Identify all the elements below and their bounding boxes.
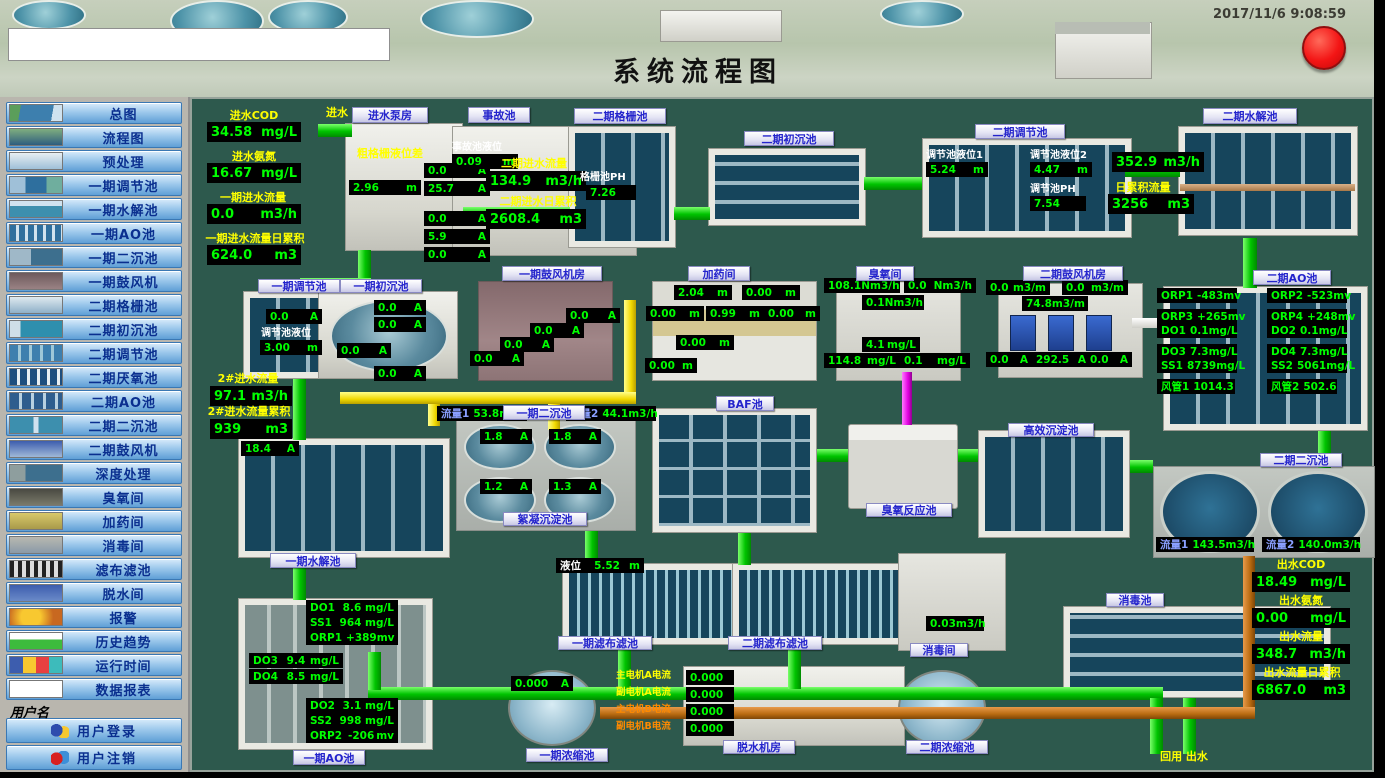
- sidebar-item-15[interactable]: 二期鼓风机: [6, 438, 182, 460]
- thumbnail-icon: [9, 272, 63, 290]
- sidebar-item-label: 一期水解池: [66, 200, 181, 219]
- sidebar-item-11[interactable]: 二期调节池: [6, 342, 182, 364]
- thumbnail-icon: [9, 440, 63, 458]
- user-button-label: 用户登录: [77, 721, 137, 740]
- sidebar-item-label: 加药间: [66, 512, 181, 531]
- datetime-display: 2017/11/6 9:08:59: [1213, 7, 1346, 22]
- sidebar-item-label: 总图: [66, 104, 181, 123]
- thumbnail-icon: [9, 200, 63, 218]
- sidebar-item-2[interactable]: 流程图: [6, 126, 182, 148]
- sidebar-item-9[interactable]: 二期格栅池: [6, 294, 182, 316]
- thumbnail-icon: [9, 632, 63, 650]
- sidebar-nav-list: 总图流程图预处理一期调节池一期水解池一期AO池一期二沉池一期鼓风机二期格栅池二期…: [6, 102, 182, 700]
- sidebar-item-label: 一期调节池: [66, 176, 181, 195]
- sidebar-nav: 总图流程图预处理一期调节池一期水解池一期AO池一期二沉池一期鼓风机二期格栅池二期…: [0, 97, 190, 772]
- sidebar-item-label: 运行时间: [66, 656, 181, 675]
- login-icon: [51, 724, 69, 738]
- header-banner: 系统流程图 2017/11/6 9:08:59: [0, 0, 1374, 98]
- aerial-building-icon: [660, 10, 782, 42]
- thumbnail-icon: [9, 608, 63, 626]
- sidebar-item-label: 二期AO池: [66, 392, 181, 411]
- thumbnail-icon: [9, 656, 63, 674]
- sidebar-item-10[interactable]: 二期初沉池: [6, 318, 182, 340]
- thumbnail-icon: [9, 488, 63, 506]
- sidebar-item-label: 脱水间: [66, 584, 181, 603]
- sidebar-item-label: 一期二沉池: [66, 248, 181, 267]
- sidebar-item-label: 二期厌氧池: [66, 368, 181, 387]
- sidebar-item-label: 深度处理: [66, 464, 181, 483]
- thumbnail-icon: [9, 344, 63, 362]
- sidebar-item-4[interactable]: 一期调节池: [6, 174, 182, 196]
- sidebar-item-label: 一期鼓风机: [66, 272, 181, 291]
- sidebar-item-5[interactable]: 一期水解池: [6, 198, 182, 220]
- thumbnail-icon: [9, 104, 63, 122]
- sidebar-item-3[interactable]: 预处理: [6, 150, 182, 172]
- sidebar-item-1[interactable]: 总图: [6, 102, 182, 124]
- sidebar-user-buttons: 用户登录用户注销退出运行: [6, 718, 182, 778]
- sidebar-item-19[interactable]: 消毒间: [6, 534, 182, 556]
- sidebar-item-21[interactable]: 脱水间: [6, 582, 182, 604]
- sidebar-item-label: 二期格栅池: [66, 296, 181, 315]
- thumbnail-icon: [9, 152, 63, 170]
- sidebar-item-label: 一期AO池: [66, 224, 181, 243]
- sidebar-item-14[interactable]: 二期二沉池: [6, 414, 182, 436]
- sidebar-item-18[interactable]: 加药间: [6, 510, 182, 532]
- thumbnail-icon: [9, 416, 63, 434]
- frame-right: [1374, 0, 1385, 778]
- thumbnail-icon: [9, 128, 63, 146]
- thumbnail-icon: [9, 368, 63, 386]
- thumbnail-icon: [9, 536, 63, 554]
- sidebar-item-8[interactable]: 一期鼓风机: [6, 270, 182, 292]
- thumbnail-icon: [9, 680, 63, 698]
- sidebar-item-7[interactable]: 一期二沉池: [6, 246, 182, 268]
- sidebar-item-label: 滤布滤池: [66, 560, 181, 579]
- aerial-tank-icon: [880, 0, 964, 28]
- logout-button[interactable]: 用户注销: [6, 745, 182, 770]
- frame-bottom: [0, 772, 1385, 778]
- sidebar-item-label: 臭氧间: [66, 488, 181, 507]
- thumbnail-icon: [9, 464, 63, 482]
- aerial-tank-icon: [420, 0, 534, 38]
- sidebar-item-label: 二期鼓风机: [66, 440, 181, 459]
- aerial-roof-icon: [1055, 22, 1150, 34]
- thumbnail-icon: [9, 296, 63, 314]
- thumbnail-icon: [9, 176, 63, 194]
- thumbnail-icon: [9, 224, 63, 242]
- sidebar-item-label: 报警: [66, 608, 181, 627]
- sidebar-item-label: 消毒间: [66, 536, 181, 555]
- sidebar-item-25[interactable]: 数据报表: [6, 678, 182, 700]
- sidebar-item-label: 二期初沉池: [66, 320, 181, 339]
- sidebar-item-22[interactable]: 报警: [6, 606, 182, 628]
- login-button[interactable]: 用户登录: [6, 718, 182, 743]
- sidebar-item-20[interactable]: 滤布滤池: [6, 558, 182, 580]
- thumbnail-icon: [9, 512, 63, 530]
- logout-icon: [51, 751, 69, 765]
- thumbnail-icon: [9, 320, 63, 338]
- sidebar-item-23[interactable]: 历史趋势: [6, 630, 182, 652]
- sidebar-item-label: 数据报表: [66, 680, 181, 699]
- user-name-label: 用户名: [10, 702, 182, 716]
- sidebar-item-label: 历史趋势: [66, 632, 181, 651]
- sidebar-item-label: 二期二沉池: [66, 416, 181, 435]
- sidebar-item-label: 流程图: [66, 128, 181, 147]
- thumbnail-icon: [9, 584, 63, 602]
- aerial-tank-icon: [12, 0, 86, 30]
- sidebar-item-6[interactable]: 一期AO池: [6, 222, 182, 244]
- scada-page: 系统流程图 2017/11/6 9:08:59 总图流程图预处理一期调节池一期水…: [0, 0, 1385, 778]
- sidebar-item-24[interactable]: 运行时间: [6, 654, 182, 676]
- thumbnail-icon: [9, 392, 63, 410]
- sidebar-item-13[interactable]: 二期AO池: [6, 390, 182, 412]
- process-flow-canvas: [190, 97, 1374, 772]
- page-title: 系统流程图: [548, 50, 848, 89]
- thumbnail-icon: [9, 560, 63, 578]
- thumbnail-icon: [9, 248, 63, 266]
- sidebar-item-label: 预处理: [66, 152, 181, 171]
- sidebar-item-17[interactable]: 臭氧间: [6, 486, 182, 508]
- user-button-label: 用户注销: [77, 748, 137, 767]
- sidebar-item-16[interactable]: 深度处理: [6, 462, 182, 484]
- alarm-indicator-button[interactable]: [1302, 26, 1346, 70]
- sidebar-item-12[interactable]: 二期厌氧池: [6, 366, 182, 388]
- blank-panel: [8, 28, 390, 61]
- sidebar-item-label: 二期调节池: [66, 344, 181, 363]
